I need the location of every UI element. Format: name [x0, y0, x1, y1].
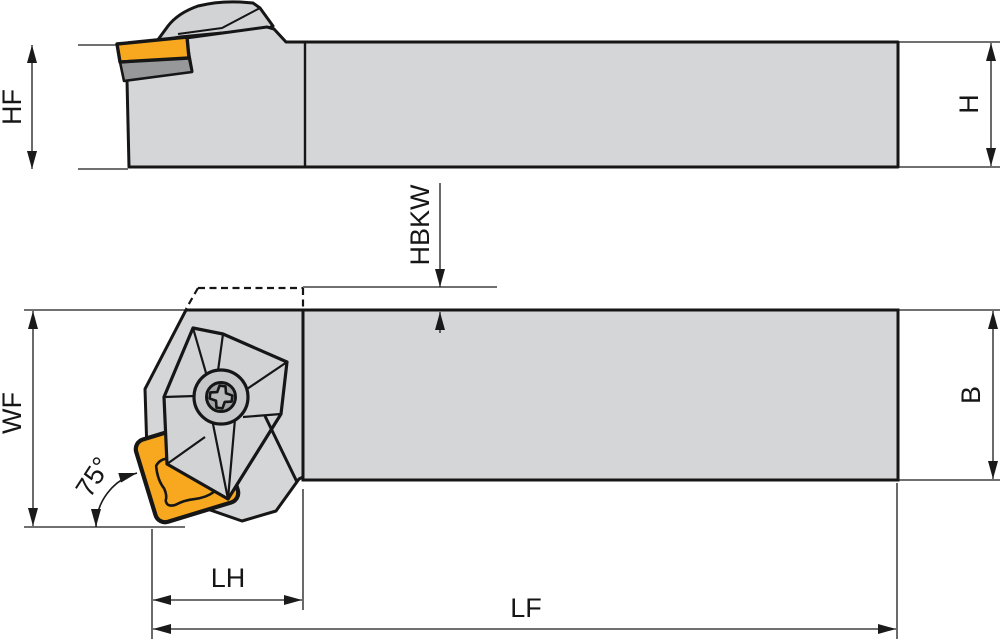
dim-label-lf: LF: [510, 593, 542, 623]
dimension-h: [898, 42, 1000, 167]
tool-holder-drawing: HF H: [0, 0, 1000, 639]
dimension-hf: [32, 45, 128, 169]
dim-label-wf: WF: [0, 392, 27, 434]
torx-screw: [194, 370, 248, 424]
insert-side: [117, 37, 189, 62]
technical-drawing-canvas: HF H: [0, 0, 1000, 639]
dim-label-hf: HF: [0, 89, 27, 125]
dim-label-hbkw: HBKW: [405, 184, 435, 266]
plan-view: HBKW WF B 75° LH: [0, 183, 1000, 639]
dim-label-b: B: [956, 386, 986, 404]
hidden-edge-dashed: [186, 288, 303, 309]
dim-label-lh: LH: [211, 563, 246, 593]
dim-label-h: H: [954, 94, 984, 114]
dim-label-angle: 75°: [70, 452, 117, 503]
shank-plan: [303, 310, 898, 480]
side-view: HF H: [0, 2, 1000, 169]
tool-body-side: [127, 27, 898, 167]
